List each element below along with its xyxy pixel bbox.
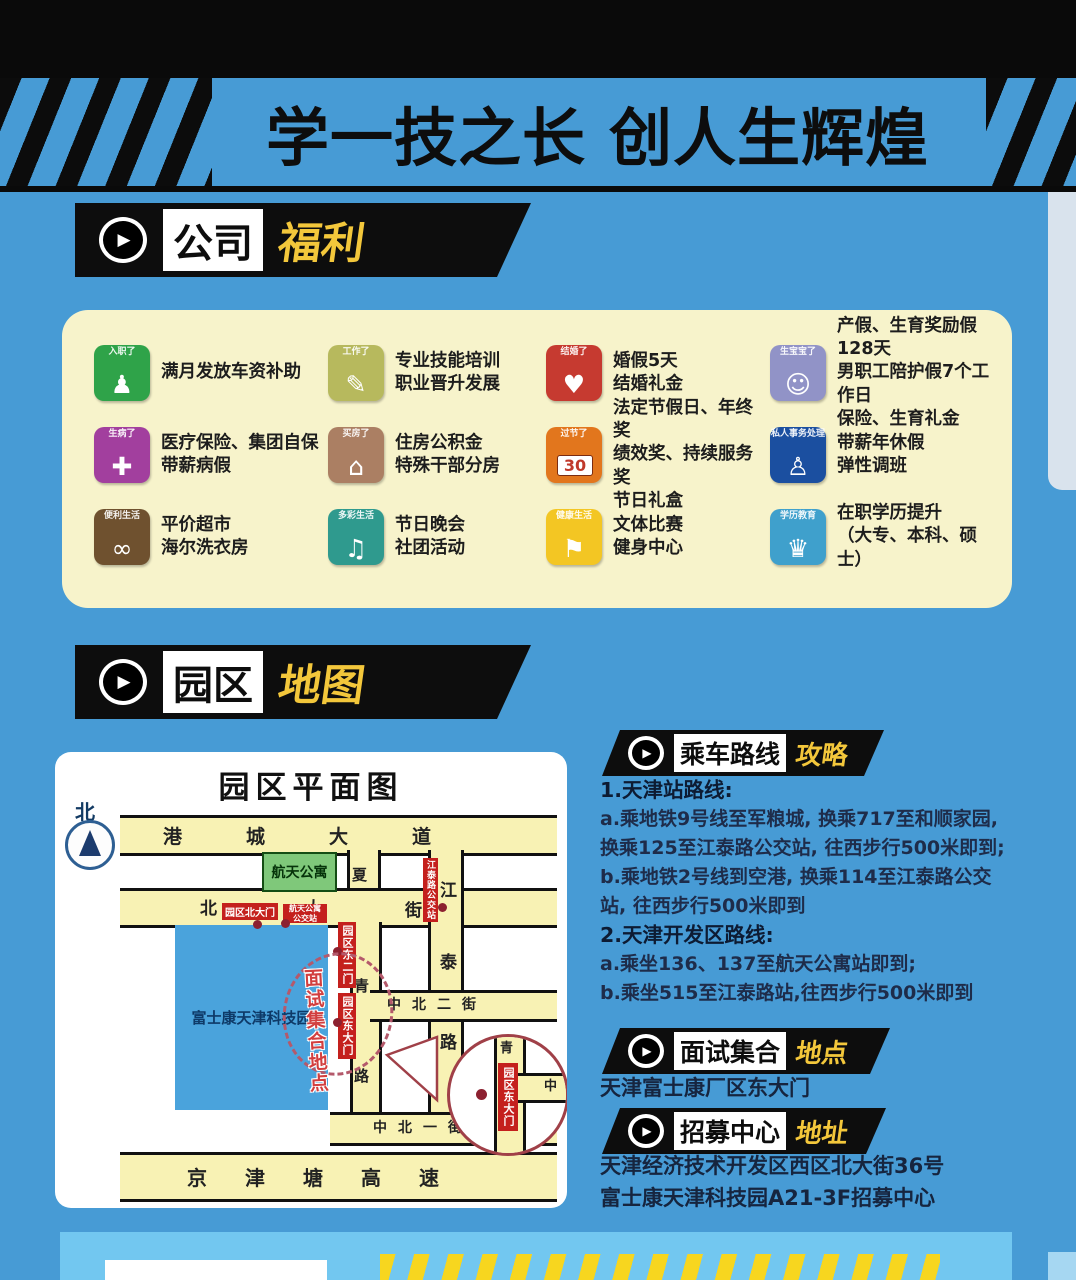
play-icon: ▶ <box>628 1114 664 1148</box>
benefit-item: 入职了♟ 满月发放车资补助 <box>94 332 322 414</box>
bicycle-icon: ∞ <box>94 536 150 561</box>
header-primary: 园区 <box>163 651 263 713</box>
benefit-tag: 学历教育 <box>770 512 826 522</box>
section-header-map: ▶ 园区 地图 <box>75 645 531 719</box>
benefit-text: 住房公积金 特殊干部分房 <box>395 432 500 478</box>
magnifier-char-top: 青 <box>500 1037 513 1056</box>
benefit-icon-tile: 便利生活∞ <box>94 509 150 565</box>
magnifier-circle: 青 中 园区东大门 <box>447 1034 567 1156</box>
benefit-text: 平价超市 海尔洗衣房 <box>161 514 249 560</box>
benefit-tag: 入职了 <box>94 348 150 358</box>
benefit-item: 生病了✚ 医疗保险、集团自保 带薪病假 <box>94 414 322 496</box>
header-primary: 乘车路线 <box>674 734 786 772</box>
benefit-icon-tile: 多彩生活♫ <box>328 509 384 565</box>
header-accent: 攻略 <box>793 735 850 772</box>
play-icon: ▶ <box>628 1034 664 1068</box>
benefit-text: 满月发放车资补助 <box>161 361 301 384</box>
benefit-icon-tile: 生病了✚ <box>94 427 150 483</box>
runner-icon: ⚑ <box>546 536 602 561</box>
title-band: 学一技之长 创人生辉煌 <box>0 78 1076 186</box>
clipped-yellow-text <box>380 1254 940 1280</box>
section-header-benefits: ▶ 公司 福利 <box>75 203 531 277</box>
header-accent: 福利 <box>275 209 370 271</box>
benefit-icon-tile: 健康生活⚑ <box>546 509 602 565</box>
header-accent: 地图 <box>275 651 370 713</box>
top-black-bar <box>0 0 1076 78</box>
header-accent: 地址 <box>793 1113 850 1150</box>
bottom-white-box <box>105 1260 327 1280</box>
house-icon: ⌂ <box>328 454 384 479</box>
recruit-address-text: 天津经济技术开发区西区北大街36号 富士康天津科技园A21-3F招募中心 <box>600 1150 944 1214</box>
route-line: b.乘坐515至江泰路站,往西步行500米即到 <box>600 979 1016 1008</box>
page-edge-sliver <box>1048 192 1076 490</box>
route-line: b.乘地铁2号线到空港, 换乘114至江泰路公交 <box>600 863 1016 892</box>
benefit-text: 在职学历提升 （大专、本科、硕士） <box>837 502 998 571</box>
benefit-icon-tile: 工作了✎ <box>328 345 384 401</box>
benefit-icon-tile: 入职了♟ <box>94 345 150 401</box>
office-worker-icon: ✎ <box>328 372 384 397</box>
benefit-tag: 生宝宝了 <box>770 348 826 358</box>
route-line: 2.天津开发区路线: <box>600 921 1016 950</box>
benefit-icon-tile: 买房了⌂ <box>328 427 384 483</box>
benefit-text: 专业技能培训 职业晋升发展 <box>395 350 500 396</box>
benefit-item: 健康生活⚑ 文体比赛 健身中心 <box>546 496 764 578</box>
magnifier-road-arm <box>512 1073 566 1103</box>
benefit-icon-tile: 过节了30 <box>546 427 602 483</box>
meeting-point-text: 天津富士康厂区东大门 <box>600 1072 810 1102</box>
benefits-grid: 入职了♟ 满月发放车资补助 工作了✎ 专业技能培训 职业晋升发展 结婚了♥ 婚假… <box>62 310 1012 588</box>
calendar-30-icon: 30 <box>557 455 593 476</box>
section-header-routes: ▶ 乘车路线 攻略 <box>602 730 884 776</box>
walking-person-icon: ♟ <box>94 372 150 397</box>
benefit-icon-tile: 私人事务处理♙ <box>770 427 826 483</box>
benefit-icon-tile: 结婚了♥ <box>546 345 602 401</box>
play-icon: ▶ <box>99 217 147 263</box>
play-icon: ▶ <box>628 736 664 770</box>
band-divider-line <box>0 186 1076 192</box>
benefit-tag: 健康生活 <box>546 512 602 522</box>
route-line: 站, 往西步行500米即到 <box>600 892 1016 921</box>
benefit-item: 学历教育♛ 在职学历提升 （大专、本科、硕士） <box>770 496 998 578</box>
benefit-item: 生宝宝了☺ 产假、生育奖励假128天 男职工陪护假7个工作日 保险、生育礼金 <box>770 332 998 414</box>
benefit-tag: 过节了 <box>546 430 602 440</box>
benefit-tag: 生病了 <box>94 430 150 440</box>
recruitment-poster: 学一技之长 创人生辉煌 ▶ 公司 福利 入职了♟ 满月发放车资补助 工作了✎ 专… <box>0 0 1076 1280</box>
route-line: a.乘地铁9号线至军粮城, 换乘717至和顺家园, <box>600 805 1016 834</box>
party-icon: ♫ <box>328 536 384 561</box>
benefit-tag: 私人事务处理 <box>770 430 826 440</box>
benefit-tag: 便利生活 <box>94 512 150 522</box>
magnifier-east-gate-label: 园区东大门 <box>498 1063 518 1131</box>
route-line: 1.天津站路线: <box>600 776 1016 805</box>
diagonal-stripes-right <box>986 78 1076 186</box>
route-line: 换乘125至江泰路公交站, 往西步行500米即到; <box>600 834 1016 863</box>
benefit-item: 便利生活∞ 平价超市 海尔洗衣房 <box>94 496 322 578</box>
header-primary: 招募中心 <box>674 1112 786 1150</box>
benefit-tag: 工作了 <box>328 348 384 358</box>
benefit-text: 节日晚会 社团活动 <box>395 514 465 560</box>
poster-title: 学一技之长 创人生辉煌 <box>205 88 990 179</box>
benefit-text: 婚假5天 结婚礼金 <box>613 350 683 396</box>
benefit-text: 医疗保险、集团自保 带薪病假 <box>161 432 319 478</box>
play-icon: ▶ <box>99 659 147 705</box>
park-map-card: 园区平面图 北 港城大道 夏 北 大 街 江 泰 路 青 路 中北二街 中北一街… <box>55 752 567 1208</box>
section-header-meeting: ▶ 面试集合 地点 <box>602 1028 890 1074</box>
benefit-item: 买房了⌂ 住房公积金 特殊干部分房 <box>328 414 540 496</box>
family-baby-icon: ☺ <box>770 372 826 397</box>
diagonal-stripes-left <box>0 78 212 186</box>
graduation-cap-icon: ♛ <box>770 536 826 561</box>
benefit-text: 文体比赛 健身中心 <box>613 514 683 560</box>
header-accent: 地点 <box>793 1033 850 1070</box>
medical-kit-icon: ✚ <box>94 454 150 479</box>
bottom-panel <box>60 1232 1012 1280</box>
benefit-item: 私人事务处理♙ 带薪年休假 弹性调班 <box>770 414 998 496</box>
benefit-item: 工作了✎ 专业技能培训 职业晋升发展 <box>328 332 540 414</box>
page-edge-sliver-bottom <box>1048 1252 1076 1280</box>
route-line: a.乘坐136、137至航天公寓站即到; <box>600 950 1016 979</box>
benefit-tag: 结婚了 <box>546 348 602 358</box>
magnifier-gate-dot <box>476 1089 487 1100</box>
benefit-icon-tile: 学历教育♛ <box>770 509 826 565</box>
standing-person-icon: ♙ <box>770 454 826 479</box>
benefit-tag: 多彩生活 <box>328 512 384 522</box>
wedding-couple-icon: ♥ <box>546 372 602 397</box>
benefit-item: 过节了30 法定节假日、年终奖 绩效奖、持续服务奖 节日礼盒 <box>546 414 764 496</box>
benefit-text: 带薪年休假 弹性调班 <box>837 432 925 478</box>
section-header-recruit: ▶ 招募中心 地址 <box>602 1108 886 1154</box>
route-directions: 1.天津站路线: a.乘地铁9号线至军粮城, 换乘717至和顺家园, 换乘125… <box>600 776 1016 1008</box>
header-primary: 面试集合 <box>674 1032 786 1070</box>
benefits-panel: 入职了♟ 满月发放车资补助 工作了✎ 专业技能培训 职业晋升发展 结婚了♥ 婚假… <box>62 310 1012 608</box>
header-primary: 公司 <box>163 209 263 271</box>
magnifier-char-right: 中 <box>544 1075 557 1094</box>
benefit-icon-tile: 生宝宝了☺ <box>770 345 826 401</box>
benefit-item: 多彩生活♫ 节日晚会 社团活动 <box>328 496 540 578</box>
benefit-tag: 买房了 <box>328 430 384 440</box>
